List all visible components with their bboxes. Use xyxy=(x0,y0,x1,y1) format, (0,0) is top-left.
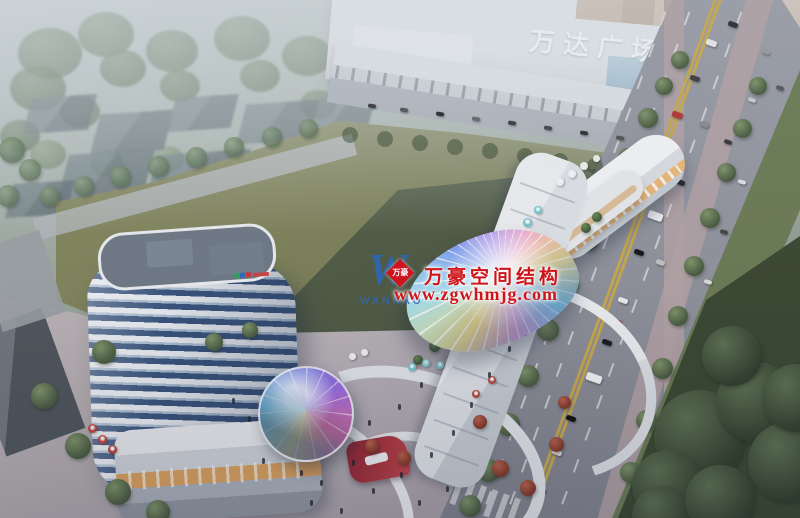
watermark-website: www.zgwhmjg.com xyxy=(394,284,558,305)
seal-text: 万豪 xyxy=(390,268,410,277)
watermark: W 万豪 WANHAO 万豪空间结构 www.zgwhmjg.com xyxy=(360,248,590,314)
aerial-rendering: 万达广场 W 万豪 xyxy=(0,0,800,518)
